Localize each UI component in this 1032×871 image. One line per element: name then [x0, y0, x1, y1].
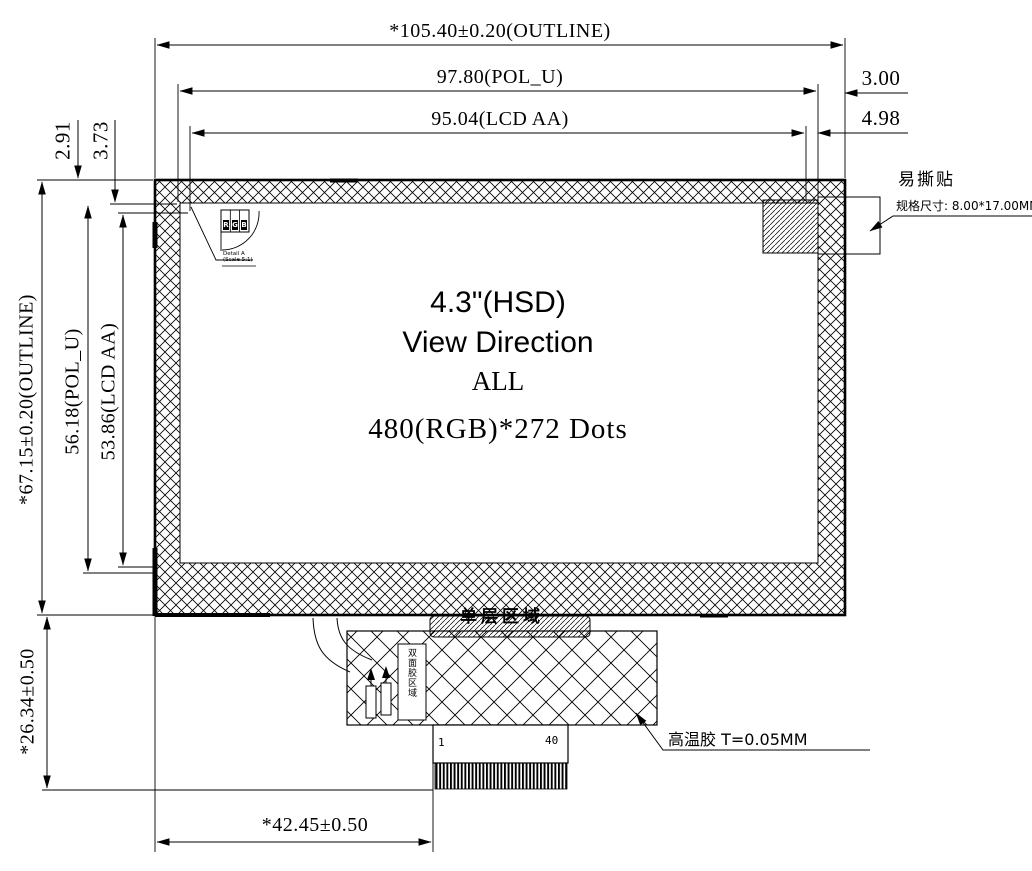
bend-wire-1 [313, 618, 350, 672]
dim-fpc-height-label: *26.34±0.50 [17, 622, 40, 782]
pixel-b: B [241, 220, 247, 230]
tape-label: 高温胶 T=0.05MM [668, 726, 808, 750]
connector-fingers [435, 763, 567, 789]
panel-resolution-text: 480(RGB)*272 Dots [300, 413, 696, 446]
dim-connector-offset-label: *42.45±0.50 [200, 814, 430, 837]
sticker-label: 易撕贴 [898, 165, 955, 190]
dim-top-offset-pol-label: 2.91 [51, 111, 76, 171]
dim-pol-width-label: 97.80(POL_U) [250, 66, 750, 89]
dim-top-offset-aa-label: 3.73 [89, 111, 114, 171]
dim-outline-height-label: *67.15±0.20(OUTLINE) [16, 270, 39, 530]
sticker-hatch [763, 200, 818, 253]
panel-view-direction-text: View Direction [300, 326, 696, 360]
pin-last-label: 40 [545, 734, 558, 747]
dim-right-offset-aa-label: 4.98 [845, 106, 917, 131]
edge-mark-top [330, 179, 358, 183]
panel-direction-text: ALL [300, 366, 696, 397]
dim-aa-height-label: 53.86(LCD AA) [98, 292, 121, 492]
single-layer-label: 单层区域 [460, 602, 544, 627]
edge-mark-left-bottom [153, 548, 158, 616]
dim-outline-width-label: *105.40±0.20(OUTLINE) [250, 20, 750, 43]
lcd-mechanical-drawing: *105.40±0.20(OUTLINE) 97.80(POL_U) 95.04… [0, 0, 1032, 871]
rgb-pixel-detail: RGB [223, 214, 250, 232]
detail-text: Detail A (Scale 5:1) [223, 251, 253, 264]
detail-text-line2: (Scale 5:1) [223, 257, 253, 263]
pixel-g: G [232, 220, 238, 230]
dim-pol-height-label: 56.18(POL_U) [62, 292, 85, 492]
panel-size-text: 4.3"(HSD) [300, 286, 696, 320]
leader-sticker [870, 216, 1032, 231]
pixel-r: R [223, 220, 229, 230]
edge-mark-bottom-left [155, 613, 270, 617]
dim-aa-width-label: 95.04(LCD AA) [250, 108, 750, 131]
edge-mark-left-top [153, 222, 158, 248]
fpc-body [347, 631, 657, 725]
sticker-spec-label: 规格尺寸: 8.00*17.00MM [896, 197, 1032, 214]
dim-right-offset-pol-label: 3.00 [845, 66, 917, 91]
pin-first-label: 1 [438, 736, 445, 749]
edge-mark-bottom-right [700, 614, 728, 618]
keepout-box-label: 双面胶区域 [405, 648, 418, 718]
